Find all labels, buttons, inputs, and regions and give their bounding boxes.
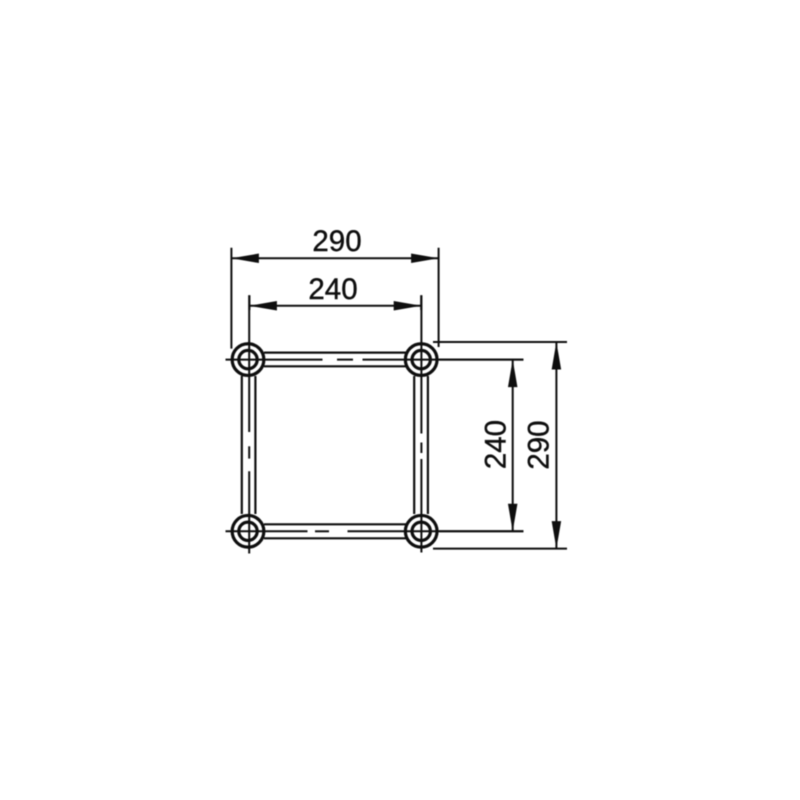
svg-text:290: 290 — [522, 420, 555, 469]
svg-text:290: 290 — [312, 225, 361, 258]
svg-text:240: 240 — [479, 420, 512, 469]
svg-text:240: 240 — [308, 273, 357, 306]
